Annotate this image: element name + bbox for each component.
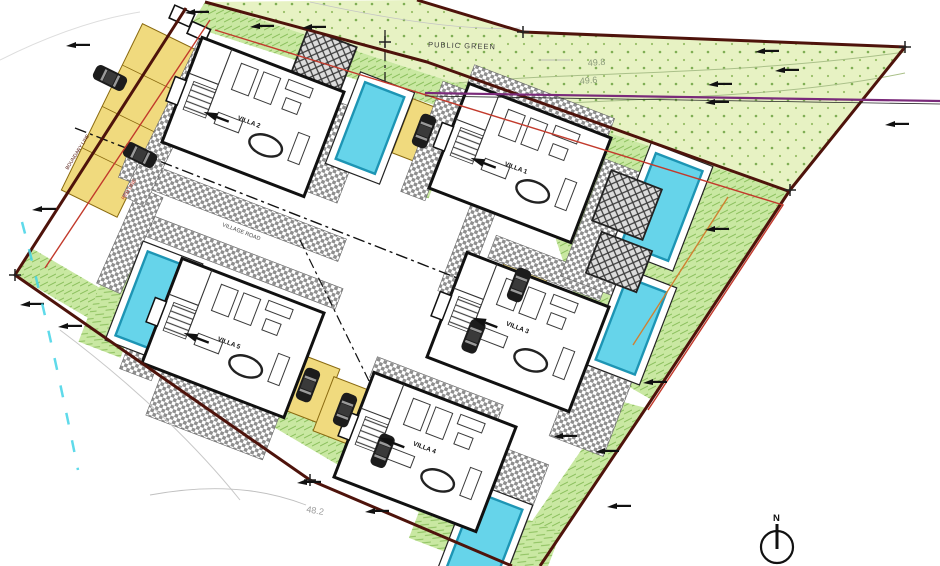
compass: N bbox=[761, 513, 793, 563]
level-annotation-49-8: 49.8 bbox=[587, 57, 605, 68]
site-plan-drawing: VILLA 1 VILLA 2 VILLA 3 VILLA 4 VILLA 5 bbox=[0, 0, 940, 566]
level-annotation-48-2: 48.2 bbox=[306, 504, 325, 517]
level-annotation-49-6: 49.6 bbox=[579, 75, 597, 86]
contour-line bbox=[0, 12, 140, 60]
contour-leader bbox=[150, 489, 306, 505]
site-plan: VILLA 1 VILLA 2 VILLA 3 VILLA 4 VILLA 5 bbox=[0, 0, 940, 566]
compass-north-label: N bbox=[773, 513, 780, 524]
